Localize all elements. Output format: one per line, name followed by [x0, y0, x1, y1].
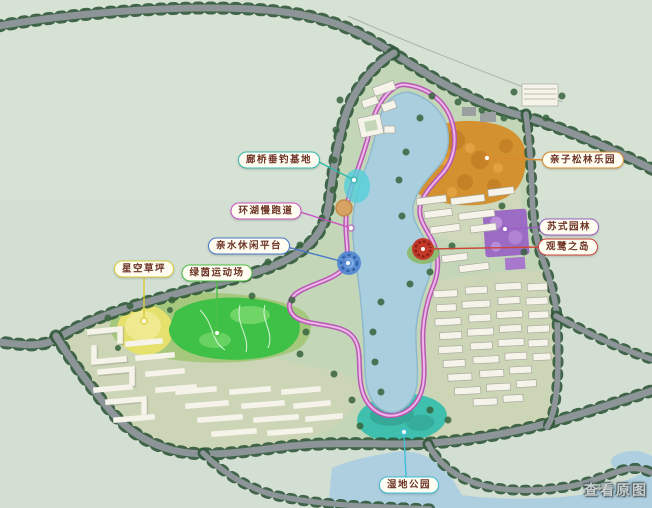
callout-wetland-park: 湿地公园: [379, 477, 439, 494]
callout-egret-island: 观鹭之岛: [538, 239, 598, 256]
callout-pine-park: 亲子松林乐园: [542, 152, 624, 169]
callout-fishing-base: 廊桥垂钓基地: [238, 152, 320, 169]
callout-sports-field: 绿茵运动场: [181, 265, 252, 282]
callout-starry-lawn: 星空草坪: [114, 261, 174, 278]
callout-waterfront-platform: 亲水休闲平台: [208, 238, 290, 255]
plaza-feature: [336, 200, 352, 216]
sports-field-area: [169, 298, 300, 360]
callout-jogging-track: 环湖慢跑道: [230, 203, 301, 220]
park-plan-screenshot: 廊桥垂钓基地 环湖慢跑道 亲水休闲平台 星空草坪 绿茵运动场 亲子松林乐园 苏式…: [0, 0, 652, 508]
callout-su-garden: 苏式园林: [539, 219, 599, 236]
view-original-button[interactable]: 查看原图: [584, 480, 648, 500]
fishing-base-feature: [344, 169, 370, 203]
